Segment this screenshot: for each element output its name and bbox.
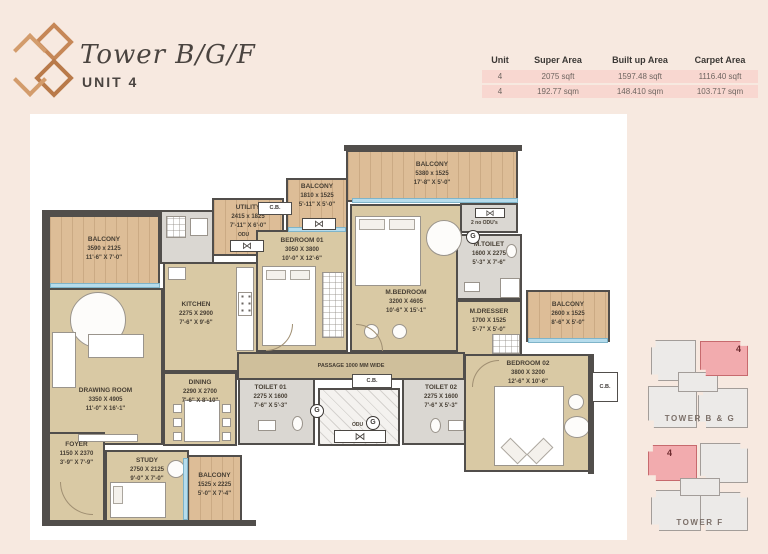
wardrobe-icon	[322, 272, 344, 338]
room-balcony-top-left: BALCONY 3590 x 2125 11'-6" X 7'-0"	[48, 215, 160, 288]
cell: 192.77 sqm	[518, 85, 598, 98]
sink-icon	[168, 267, 186, 280]
window-glazing	[352, 198, 518, 203]
room-dim-ft: 17'-8" X 5'-0"	[348, 179, 516, 188]
room-dim-mm: 1150 X 2370	[50, 450, 103, 459]
floor-plan-page: Tower B/G/F UNIT 4 Unit Super Area Built…	[0, 0, 768, 554]
room-balcony-right: BALCONY 2600 x 1525 8'-6" X 5'-0"	[526, 290, 610, 342]
cell: 148.410 sqm	[598, 85, 682, 98]
odu-label: ODU	[352, 422, 363, 428]
col-built-up-area: Built up Area	[598, 54, 682, 67]
room-dim-mm: 5380 x 1525	[348, 170, 516, 179]
refrigerator-icon	[166, 216, 186, 238]
room-name: BALCONY	[288, 182, 346, 192]
toilet-wc-icon	[292, 416, 303, 431]
room-toilet-02: TOILET 02 2275 X 1600 7'-6" X 5'-3"	[402, 378, 468, 445]
room-dim-ft: 5'-0" X 7'-4"	[189, 490, 240, 499]
pillow-icon	[290, 270, 310, 280]
stool-icon	[568, 394, 584, 410]
toilet-wc-icon	[430, 418, 441, 433]
table-row: 4 192.77 sqm 148.410 sqm 103.717 sqm	[482, 85, 758, 98]
room-dim-ft: 12'-6" X 10'-6"	[466, 378, 590, 387]
room-bedroom-01: BEDROOM 01 3050 X 3800 10'-0" X 12'-6"	[256, 230, 348, 352]
room-name: TOILET 01	[234, 383, 307, 393]
unit-number: 4	[667, 448, 672, 458]
wall	[42, 210, 48, 524]
room-name: BEDROOM 02	[466, 359, 590, 369]
room-name: BALCONY	[528, 300, 608, 310]
room-bedroom-02: BEDROOM 02 3800 X 3200 12'-6" X 10'-6"	[464, 354, 592, 472]
room-dim-ft: 7'-6" X 8'-10"	[165, 397, 235, 406]
keyplan-label: TOWER F	[644, 518, 756, 527]
sofa-icon	[52, 332, 76, 388]
keyplan-highlighted-unit: 4	[648, 445, 697, 481]
cell: 1116.40 sqft	[682, 70, 758, 83]
page-title: Tower B/G/F	[80, 40, 256, 70]
brand-logo-icon	[14, 26, 70, 94]
room-toilet-01: TOILET 01 2275 X 1600 7'-6" X 5'-3"	[238, 378, 315, 445]
floor-plan-sheet: BALCONY 3590 x 2125 11'-6" X 7'-0" UTILI…	[30, 114, 627, 540]
room-drawing-room: DRAWING ROOM 3350 X 4905 11'-0" X 16'-1"	[48, 288, 163, 445]
room-dim-ft: 5'-11" X 5'-0"	[288, 201, 346, 210]
entry-door-arc	[60, 482, 93, 515]
cell: 103.717 sqm	[682, 85, 758, 98]
room-name: BALCONY	[348, 160, 516, 170]
door-arc	[266, 324, 293, 351]
wall	[344, 145, 522, 151]
room-m-toilet: M.TOILET 1600 X 2275 5'-3" X 7'-6"	[456, 234, 522, 300]
pillow-icon	[113, 486, 123, 504]
dresser-tiles	[492, 334, 520, 354]
room-foyer: FOYER 1150 X 2370 3'-9" X 7'-9"	[48, 432, 105, 522]
cupboard-box: C.B.	[258, 202, 292, 215]
pillow-icon	[266, 270, 286, 280]
odu-shaft: ⋈ 2 no ODU's	[460, 203, 518, 233]
room-dim-mm: 2275 X 1600	[234, 393, 307, 402]
wall	[42, 520, 256, 526]
room-name: BALCONY	[189, 471, 240, 481]
cupboard-box: C.B.	[592, 372, 618, 402]
room-dim-mm: 1525 x 2225	[189, 481, 240, 490]
unit-subtitle: UNIT 4	[82, 74, 138, 90]
odu-fan-icon: ⋈	[302, 218, 336, 230]
room-dim-mm: 2290 X 2700	[165, 388, 235, 397]
col-super-area: Super Area	[518, 54, 598, 67]
chair-icon	[564, 416, 590, 438]
room-dim-ft: 10'-0" X 12'-6"	[258, 255, 346, 264]
hob-icon	[238, 292, 252, 316]
room-dim-ft: 11'-0" X 16'-1"	[50, 405, 161, 414]
sofa-icon	[88, 334, 144, 358]
door-arc	[356, 324, 383, 351]
room-dim-ft: 7'-6" X 5'-3"	[410, 402, 472, 411]
room-dim-ft: 8'-6" X 5'-0"	[528, 319, 608, 328]
room-dim-mm: 2750 X 2125	[107, 466, 187, 475]
room-dim-ft: 7'-6" X 9'-6"	[165, 319, 227, 328]
room-study: STUDY 2750 X 2125 9'-0" X 7'-0"	[105, 450, 189, 522]
odu-fan-icon: ⋈	[475, 208, 505, 218]
keyplan-highlighted-unit: 4	[700, 341, 748, 376]
service-shaft: ODU ⋈	[318, 388, 400, 446]
room-dim-mm: 3200 X 4605	[352, 298, 460, 307]
wall	[42, 210, 162, 215]
odu-fan-icon: ⋈	[334, 430, 386, 443]
keyplan-unit-block	[700, 443, 748, 483]
room-name: KITCHEN	[165, 300, 227, 310]
room-dim-mm: 2600 x 1525	[528, 310, 608, 319]
keyplan-tower-bg: 4 TOWER B & G	[644, 334, 756, 430]
window-glazing	[528, 338, 608, 343]
keyplan-label: TOWER B & G	[644, 414, 756, 423]
shower-icon	[500, 278, 520, 298]
room-dim-ft: 5'-7" X 5'-0"	[458, 326, 520, 335]
room-dim-ft: 10'-6" X 15'-1"	[352, 307, 460, 316]
appliance-nook	[160, 210, 214, 264]
passage: PASSAGE 1000 MM WIDE	[237, 352, 465, 380]
keyplan-tower-f: 4 TOWER F	[644, 438, 756, 534]
room-name: FOYER	[50, 440, 103, 450]
counter-icon	[190, 218, 208, 236]
room-dim-mm: 3800 X 3200	[466, 369, 590, 378]
room-dim-mm: 1700 X 1525	[458, 317, 520, 326]
room-dim-mm: 2275 X 2900	[165, 310, 227, 319]
room-dim-mm: 3050 X 3800	[258, 246, 346, 255]
room-name: BEDROOM 01	[258, 236, 346, 246]
area-table-header: Unit Super Area Built up Area Carpet Are…	[482, 52, 758, 68]
room-name: TOILET 02	[410, 383, 472, 393]
room-dim-mm: 2275 X 1600	[410, 393, 472, 402]
chair-icon	[222, 418, 231, 427]
chair-icon	[173, 432, 182, 441]
room-name: DRAWING ROOM	[50, 386, 161, 396]
window-glazing	[50, 283, 160, 288]
cupboard-box: C.B.	[352, 374, 392, 388]
chair-icon	[173, 418, 182, 427]
room-balcony-top-middle: BALCONY 1810 x 1525 5'-11" X 5'-0" ⋈	[286, 178, 348, 232]
room-m-dresser: M.DRESSER 1700 X 1525 5'-7" X 5'-0"	[456, 300, 522, 356]
round-chair-icon	[426, 220, 462, 256]
chair-icon	[222, 432, 231, 441]
room-name: M.BEDROOM	[352, 288, 460, 298]
room-dim-ft: 7'-6" X 5'-3"	[234, 402, 307, 411]
table-row: 4 2075 sqft 1597.48 sqft 1116.40 sqft	[482, 70, 758, 83]
room-balcony-top-right: BALCONY 5380 x 1525 17'-8" X 5'-0"	[346, 150, 518, 202]
room-dim-ft: 7'-11" X 6'-0"	[214, 222, 282, 231]
room-name: M.DRESSER	[458, 307, 520, 317]
room-balcony-bottom: BALCONY 1525 x 2225 5'-0" X 7'-4"	[187, 455, 242, 522]
room-dim-ft: 9'-0" X 7'-0"	[107, 475, 187, 484]
cell: 4	[482, 70, 518, 83]
room-dining: DINING 2290 X 2700 7'-6" X 8'-10"	[163, 372, 237, 446]
room-dim-ft: 5'-3" X 7'-6"	[458, 259, 520, 268]
stool-icon	[392, 324, 407, 339]
basin-icon	[464, 282, 480, 292]
odu-fan-icon: ⋈	[230, 240, 264, 252]
cell: 4	[482, 85, 518, 98]
room-name: STUDY	[107, 456, 187, 466]
basin-icon	[258, 420, 276, 431]
cell: 2075 sqft	[518, 70, 598, 83]
basin-icon	[448, 420, 464, 431]
room-dim-mm: 3350 X 4905	[50, 396, 161, 405]
pillow-icon	[389, 219, 415, 230]
cell: 1597.48 sqft	[598, 70, 682, 83]
col-unit: Unit	[482, 54, 518, 67]
room-dim-mm: 1600 X 2275	[458, 250, 520, 259]
passage-label: PASSAGE 1000 MM WIDE	[239, 362, 463, 370]
odu-label: ODU	[238, 232, 249, 238]
room-dim-ft: 11'-6" X 7'-0"	[50, 254, 158, 263]
room-dim-mm: 3590 x 2125	[50, 245, 158, 254]
room-m-bedroom: M.BEDROOM 3200 X 4605 10'-6" X 15'-1"	[350, 204, 462, 352]
area-table: Unit Super Area Built up Area Carpet Are…	[482, 52, 758, 98]
geyser-badge: G	[466, 230, 480, 244]
room-name: BALCONY	[50, 235, 158, 245]
col-carpet-area: Carpet Area	[682, 54, 758, 67]
geyser-badge: G	[310, 404, 324, 418]
keyplan-core-block	[680, 478, 720, 496]
room-dim-ft: 3'-9" X 7'-9"	[50, 459, 103, 468]
room-dim-mm: 1810 x 1525	[288, 192, 346, 201]
room-name: DINING	[165, 378, 235, 388]
geyser-badge: G	[366, 416, 380, 430]
unit-number: 4	[736, 344, 741, 354]
pillow-icon	[359, 219, 385, 230]
two-odu-label: 2 no ODU's	[471, 220, 498, 226]
